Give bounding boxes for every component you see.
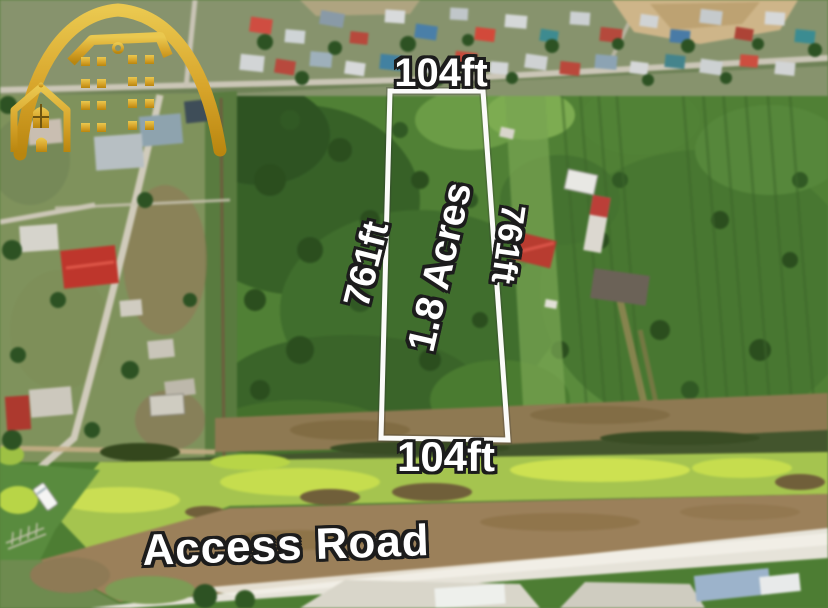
- top-width-label: 104ft: [394, 53, 487, 93]
- access-road-label: Access Road: [142, 519, 431, 573]
- aerial-photo: 104ft 761ft 1.8 Acres 761ft 104ft Access…: [0, 0, 828, 608]
- bottom-width-label: 104ft: [397, 436, 495, 478]
- gold-arch-buildings-logo: [14, 10, 220, 154]
